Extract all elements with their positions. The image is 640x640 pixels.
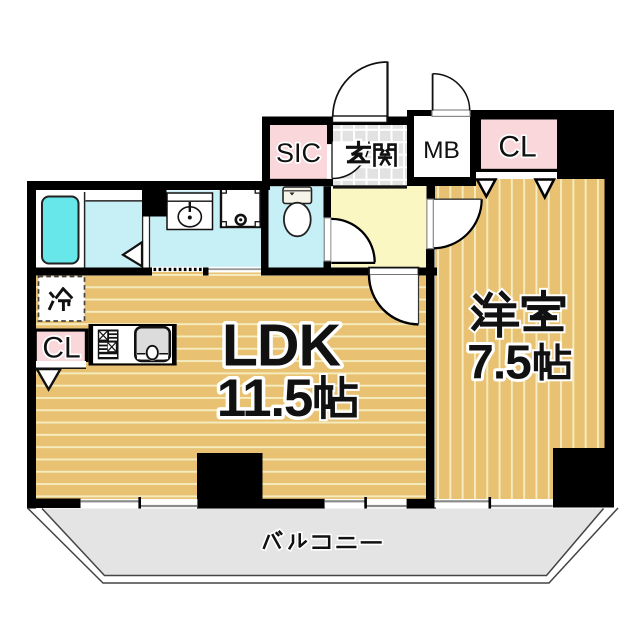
svg-text:SIC: SIC [276,138,321,168]
svg-text:CL: CL [42,332,80,365]
svg-text:CL: CL [498,131,536,164]
svg-text:7.5: 7.5 [467,337,531,390]
svg-text:MB: MB [423,137,460,164]
svg-text:11.5: 11.5 [217,369,312,428]
